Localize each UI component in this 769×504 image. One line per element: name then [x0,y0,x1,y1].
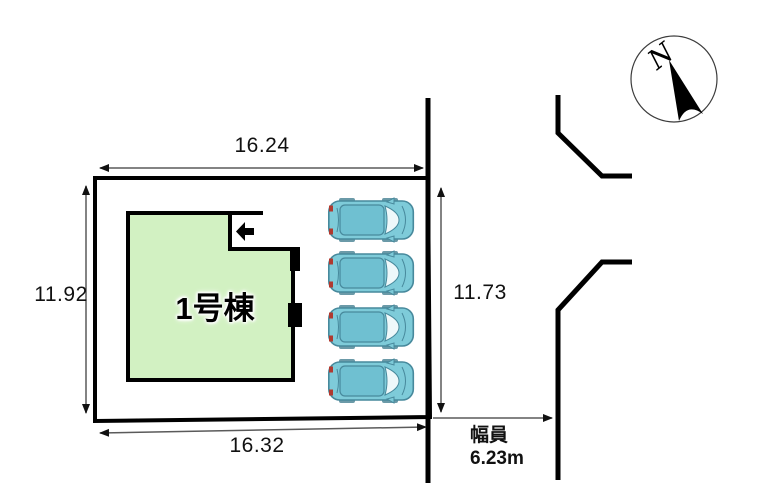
building-label: 1号棟 [125,283,305,328]
compass: N [631,36,717,122]
car-icon-3 [329,305,414,349]
car-icon-4 [329,359,414,403]
site-plan: N 16.24 11.92 11.73 16.32 幅員 6.23m 1号棟 [0,0,769,504]
building-step-upper [290,247,300,271]
dimension-bottom-label: 16.32 [157,434,357,458]
site-plan-drawing: N [0,0,769,504]
car-icon-2 [329,251,414,295]
road-width-value: 6.23m [470,447,524,470]
dimension-left-label: 11.92 [29,283,93,307]
road-width-caption: 幅員 [470,424,524,447]
dimension-top-label: 16.24 [162,134,362,158]
dimension-right-label: 11.73 [447,281,513,305]
dimension-line-bottom [100,427,426,433]
compass-needle-icon [669,60,703,121]
road-width-label: 幅員 6.23m [470,424,524,470]
car-icon-1 [329,198,414,242]
road-edge-right-lower [558,262,632,480]
road-edge-right-upper [558,95,632,176]
